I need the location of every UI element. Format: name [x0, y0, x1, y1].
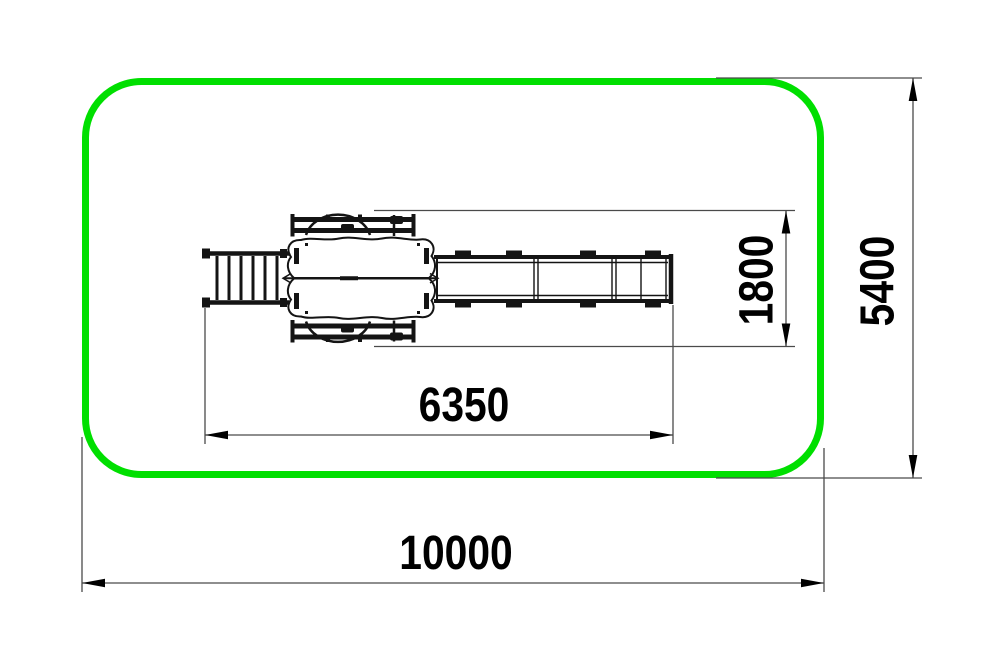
technical-drawing: 1800 6350 5400 10000 [0, 0, 1000, 666]
platform-deck-top [288, 238, 435, 278]
arrowhead-down [909, 455, 918, 478]
arrowhead-right [650, 431, 673, 440]
drawing-canvas: 1800 6350 5400 10000 [0, 0, 1000, 666]
dimension-label-total-length: 10000 [399, 527, 512, 580]
top-guardrail [291, 214, 415, 237]
dimension-label-equipment-length: 6350 [419, 379, 510, 432]
dimension-label-total-width: 5400 [851, 236, 904, 327]
dimension-label-equipment-width: 1800 [730, 235, 783, 326]
ladder [202, 249, 289, 308]
arrowhead-left [82, 579, 105, 588]
arrowhead-left [205, 431, 228, 440]
playground-equipment [202, 214, 673, 343]
ladder-rungs [217, 256, 277, 300]
arrowhead-down [782, 324, 791, 347]
dimension-total-length: 10000 [82, 437, 824, 592]
platform-deck-bottom [288, 279, 435, 319]
arrowhead-right [801, 579, 824, 588]
slide [434, 251, 673, 308]
slide-rails [434, 254, 673, 304]
arrowhead-up [782, 211, 791, 234]
bottom-guardrail [291, 320, 415, 343]
dimension-equipment-length: 6350 [205, 305, 673, 444]
arrowhead-up [909, 78, 918, 101]
platform-tower [283, 214, 438, 343]
slide-mounts [455, 251, 661, 308]
